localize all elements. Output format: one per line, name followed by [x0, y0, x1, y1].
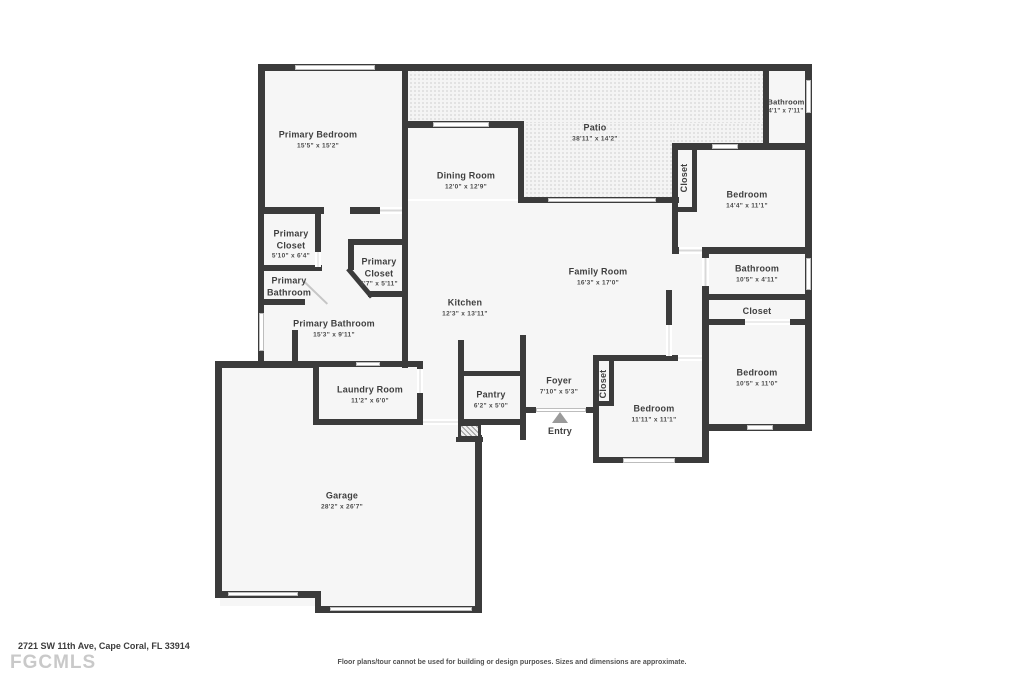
window — [623, 458, 675, 463]
door-opening — [356, 362, 380, 366]
door-opening — [678, 355, 702, 361]
room-label-primary-bedroom: Primary Bedroom 15'5" x 15'2" — [279, 129, 358, 150]
room-label-garage: Garage 28'2" x 26'7" — [321, 490, 363, 511]
room-label-bedroom-top-right: Bedroom 14'4" x 11'1" — [726, 189, 768, 210]
door-opening — [380, 207, 402, 214]
patio-surface — [672, 123, 763, 145]
utility-hatch — [458, 423, 481, 439]
room-label-patio: Patio 38'11" x 14'2" — [572, 122, 618, 143]
room-label-laundry-room: Laundry Room 11'2" x 6'0" — [337, 384, 403, 405]
door-opening — [423, 419, 458, 425]
patio-surface — [405, 69, 763, 123]
disclaimer-text: Floor plans/tour cannot be used for buil… — [0, 659, 1024, 666]
window — [712, 144, 738, 149]
window — [806, 258, 811, 290]
wall — [215, 361, 222, 598]
room-label-primary-bathroom: Primary Bathroom 15'3" x 9'11" — [293, 318, 375, 339]
room-label-closet-right: Closet — [743, 306, 772, 318]
entry-arrow-icon — [552, 412, 568, 423]
wall — [672, 143, 812, 150]
door-opening — [666, 325, 672, 356]
window — [747, 425, 773, 430]
wall — [666, 290, 672, 325]
window — [806, 80, 811, 113]
room-label-bathroom-top-right: Bathroom 4'1" x 7'11" — [767, 98, 804, 117]
room-label-primary-bathroom-wc: Primary Bathroom — [261, 275, 317, 298]
wall — [672, 207, 697, 212]
wall — [258, 64, 265, 214]
wall — [672, 143, 678, 254]
wall — [215, 361, 313, 368]
wall — [586, 407, 598, 413]
room-label-closet-foyer: Closet — [598, 370, 610, 399]
wall — [368, 291, 408, 297]
floor-plan-page: Primary Bedroom 15'5" x 15'2" Patio 38'1… — [0, 0, 1024, 682]
room-label-kitchen: Kitchen 12'3" x 13'11" — [442, 297, 488, 318]
door-opening — [745, 319, 790, 325]
wall — [313, 361, 319, 425]
door-opening — [417, 369, 423, 393]
wall — [518, 121, 524, 203]
wall — [458, 371, 526, 376]
wall — [475, 435, 482, 613]
entry-label: Entry — [548, 426, 572, 438]
address-text: 2721 SW 11th Ave, Cape Coral, FL 33914 — [18, 641, 190, 651]
window — [259, 313, 264, 351]
wall — [260, 299, 305, 305]
room-label-closet-top-right: Closet — [679, 164, 691, 193]
garage-door — [330, 607, 472, 611]
room-label-family-room: Family Room 16'3" x 17'0" — [569, 266, 628, 287]
wall — [402, 64, 408, 368]
room-label-foyer: Foyer 7'10" x 5'3" — [540, 375, 578, 396]
room-label-pantry: Pantry 6'2" x 5'0" — [474, 389, 508, 410]
window — [433, 122, 489, 127]
room-label-primary-closet-right: Primary Closet 5'7" x 5'11" — [351, 257, 407, 290]
garage-door — [228, 592, 298, 596]
wall — [350, 207, 380, 214]
room-label-bedroom-right: Bedroom 10'5" x 11'0" — [736, 367, 778, 388]
wall — [313, 419, 423, 425]
room-fill — [406, 201, 704, 357]
room-label-bathroom-right: Bathroom 10'5" x 4'11" — [735, 263, 779, 284]
door-opening — [679, 247, 702, 254]
wall — [702, 294, 812, 300]
wall — [692, 150, 697, 207]
room-label-dining-room: Dining Room 12'0" x 12'9" — [437, 170, 495, 191]
window — [295, 65, 375, 70]
wall — [260, 265, 322, 271]
room-label-bedroom-bottom: Bedroom 11'11" x 11'1" — [632, 403, 677, 424]
door-opening — [702, 258, 709, 286]
sliding-door — [548, 198, 656, 202]
wall — [596, 401, 614, 406]
room-label-primary-closet-left: Primary Closet 5'10" x 6'4" — [263, 229, 319, 262]
wall — [348, 239, 406, 245]
